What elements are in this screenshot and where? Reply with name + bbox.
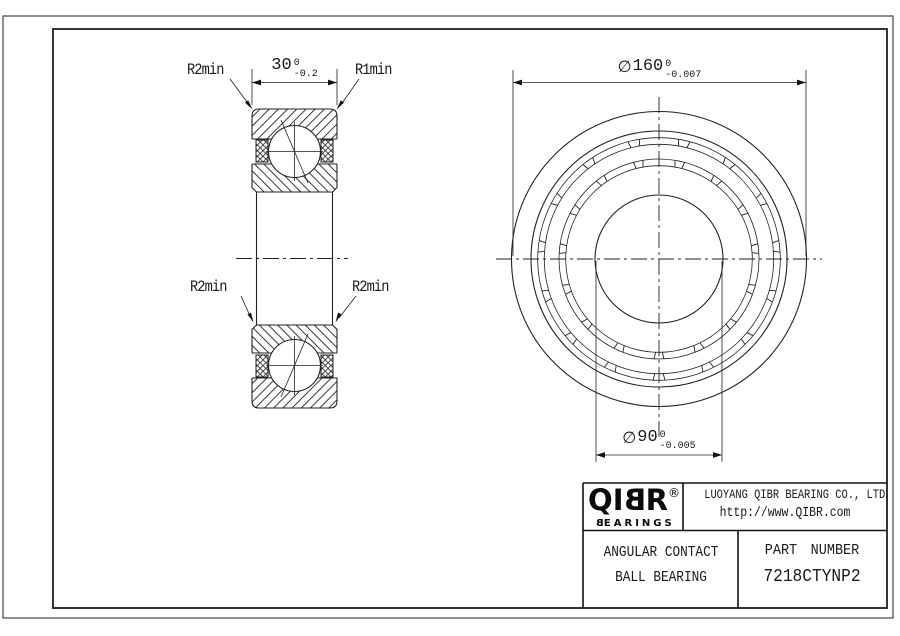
logo-part-r: R — [646, 483, 668, 517]
logo-part-qi: QI — [588, 483, 623, 517]
bore-tolerance: 0 -0.005 — [660, 430, 696, 452]
page-border-outer — [3, 16, 893, 618]
qibr-logo-subtitle: BEARINGS — [584, 518, 684, 529]
od-tol-lower: -0.007 — [665, 70, 701, 81]
od-value: 160 — [633, 58, 664, 76]
drawing-sheet: R2min R1min R2min R2min 30 0 -0.2 ∅ 160 … — [0, 0, 900, 636]
logo-sub-earings: EARINGS — [604, 518, 675, 529]
od-dimension-text: ∅ 160 0 -0.007 — [513, 58, 806, 81]
registered-mark: ® — [668, 486, 680, 500]
part-number-label: PART NUMBER — [745, 542, 878, 559]
logo-sub-b: B — [593, 518, 604, 529]
od-tolerance: 0 -0.007 — [665, 59, 701, 81]
diameter-symbol: ∅ — [622, 429, 636, 447]
bore-value: 90 — [637, 429, 657, 447]
company-name: LUOYANG QIBR BEARING CO., LTD — [704, 487, 866, 502]
bore-dimension-text: ∅ 90 0 -0.005 — [596, 429, 722, 452]
logo-part-b: B — [624, 486, 646, 515]
product-name-line2: BALL BEARING — [596, 569, 727, 586]
width-dimension-text: 30 0 -0.2 — [252, 57, 337, 80]
bore-tol-lower: -0.005 — [660, 441, 696, 452]
drawing-linework — [0, 0, 900, 636]
bore-tol-upper: 0 — [660, 430, 696, 441]
od-dimension — [513, 70, 806, 256]
od-tol-upper: 0 — [665, 59, 701, 70]
width-value: 30 — [271, 57, 291, 75]
part-number-value: 7218CTYNP2 — [745, 567, 878, 587]
r2min-label-mid-left: R2min — [190, 278, 227, 296]
r2min-label-top-left: R2min — [187, 61, 224, 79]
qibr-logo: QIBR® — [584, 486, 684, 521]
section-view — [236, 109, 348, 408]
r1min-label-top-right: R1min — [355, 61, 392, 79]
company-website: http://www.QIBR.com — [699, 506, 871, 521]
width-tol-upper: 0 — [294, 58, 318, 69]
width-tol-lower: -0.2 — [294, 69, 318, 80]
width-tolerance: 0 -0.2 — [294, 58, 318, 80]
diameter-symbol: ∅ — [618, 58, 632, 76]
product-name-line1: ANGULAR CONTACT — [596, 544, 727, 561]
r2min-label-mid-right: R2min — [352, 278, 389, 296]
drawing-frame — [53, 29, 887, 608]
front-view — [496, 97, 822, 441]
